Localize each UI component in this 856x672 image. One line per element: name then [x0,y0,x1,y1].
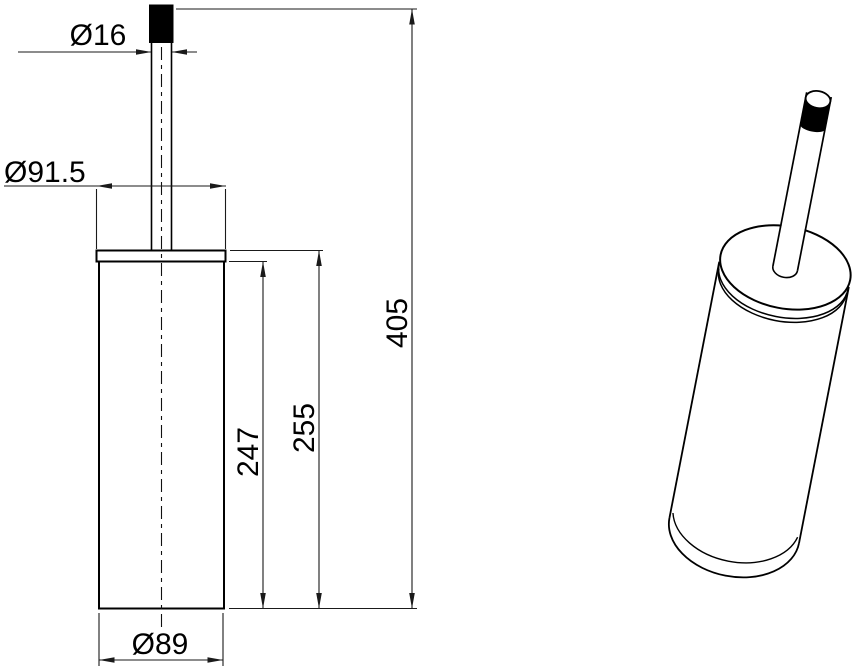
dim-arrow-icon [260,262,266,278]
dim-arrow-icon [409,593,415,609]
dim-body-height: 247 [229,262,267,609]
dim-arrow-icon [97,183,113,189]
drawing-svg: Ø16 Ø91.5 405 255 [0,0,856,672]
dim-label-lid-to-base-height: 255 [288,403,321,453]
dim-arrow-icon [210,183,226,189]
iso-bottom-rim-outer [661,518,799,588]
dim-label-handle-diameter: Ø16 [70,19,127,52]
front-view: Ø16 Ø91.5 405 255 [4,5,417,667]
dim-arrow-icon [99,657,115,663]
iso-body-right-edge [799,287,849,543]
dim-arrow-icon [136,49,152,55]
iso-view [661,79,856,589]
dim-arrow-icon [208,657,224,663]
dim-arrow-icon [260,593,266,609]
dim-arrow-icon [316,593,322,609]
dim-label-base-diameter: Ø89 [132,628,189,661]
dim-label-lid-diameter: Ø91.5 [4,156,86,189]
front-handle-cap [149,5,174,44]
iso-body-left-edge [669,262,719,518]
dim-lid-diameter: Ø91.5 [4,156,226,249]
dim-arrow-icon [172,49,188,55]
dim-arrow-icon [409,9,415,25]
dim-label-body-height: 247 [232,427,265,477]
dim-arrow-icon [316,251,322,267]
dim-label-overall-height: 405 [381,298,414,348]
iso-bottom-rim-inner [666,513,798,573]
technical-drawing-canvas: Ø16 Ø91.5 405 255 [0,0,856,672]
